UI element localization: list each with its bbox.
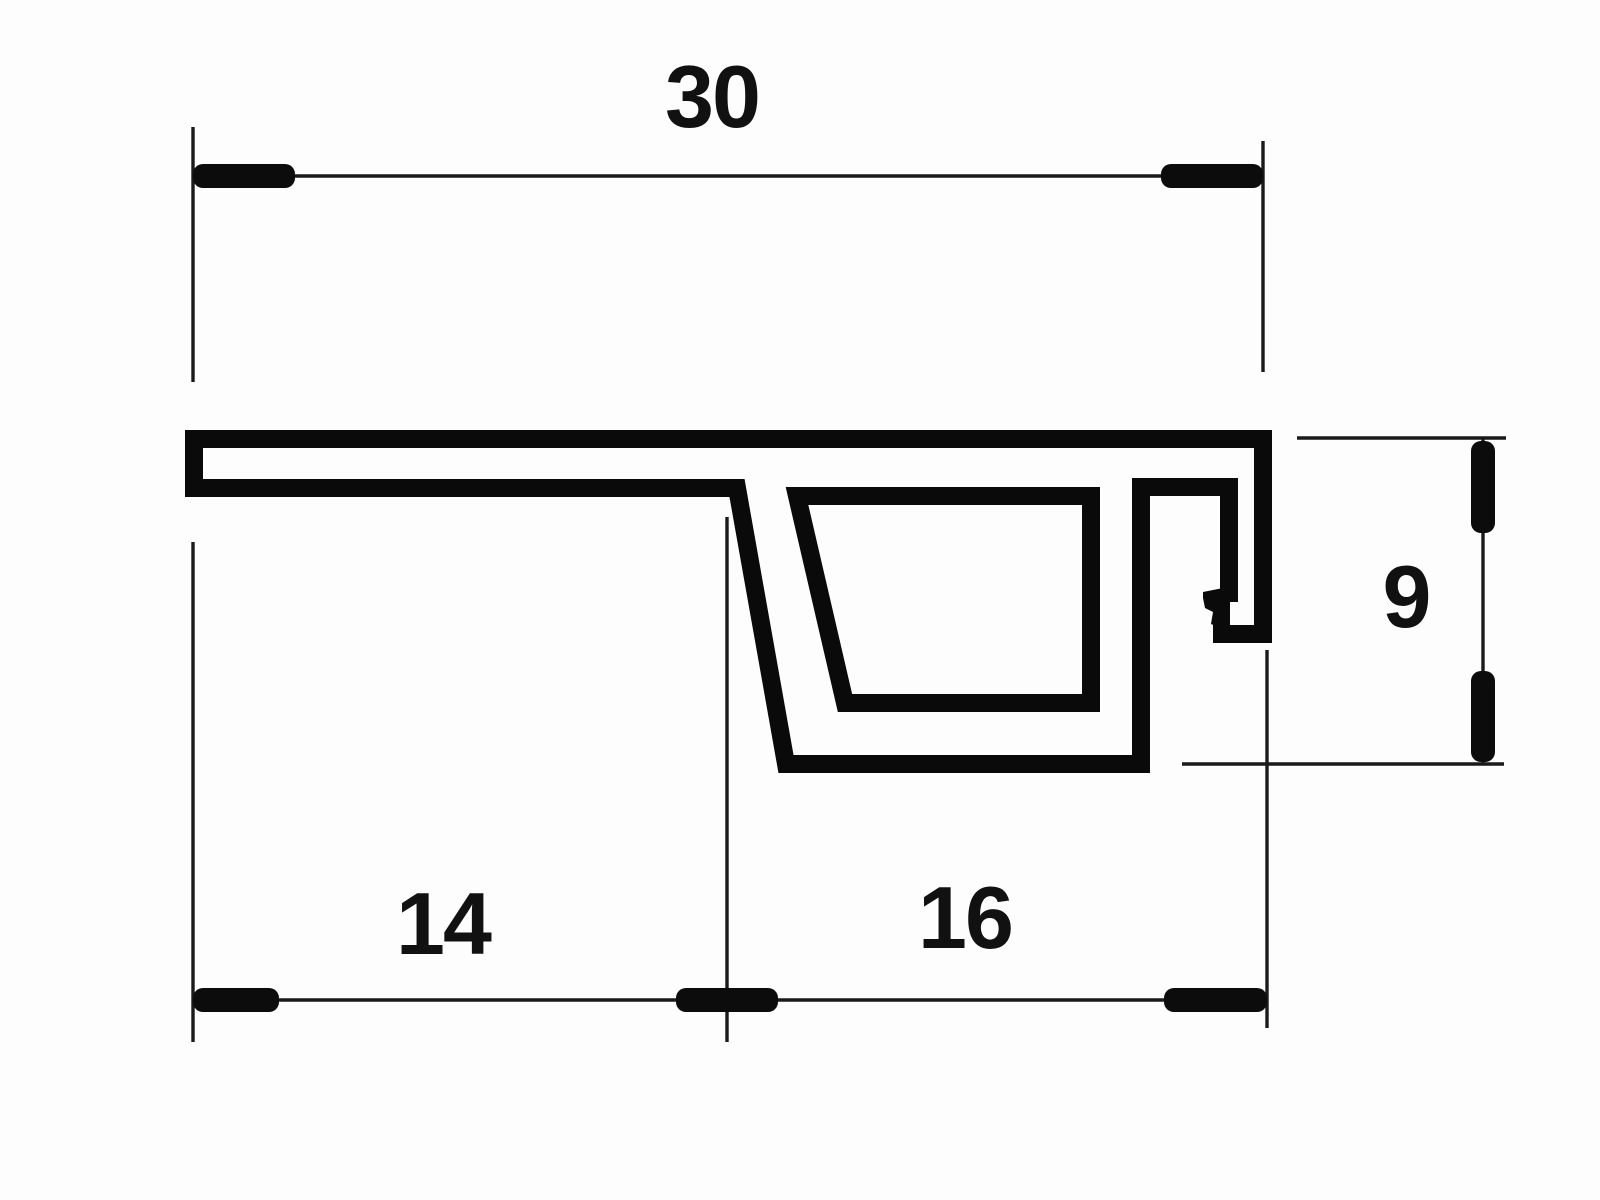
dimension-tick [193, 988, 279, 1012]
dimension-label-14: 14 [396, 874, 492, 973]
profile-dimension-drawing: 30 14 16 9 [0, 0, 1600, 1200]
dimension-tick [1164, 988, 1267, 1012]
dimension-tick [1161, 164, 1263, 188]
dimension-label-9: 9 [1383, 547, 1430, 646]
dimension-total-width: 30 [193, 47, 1263, 382]
dimension-bottom-widths: 14 16 [193, 517, 1267, 1042]
technical-drawing-canvas: 30 14 16 9 [0, 0, 1600, 1200]
dimension-label-16: 16 [918, 868, 1012, 967]
profile-inner-chamber [797, 496, 1091, 703]
dimension-tick [193, 164, 295, 188]
dimension-label-30: 30 [665, 47, 759, 146]
dimension-tick [1471, 441, 1495, 533]
dimension-tick [676, 988, 778, 1012]
dimension-tick [1471, 671, 1495, 762]
